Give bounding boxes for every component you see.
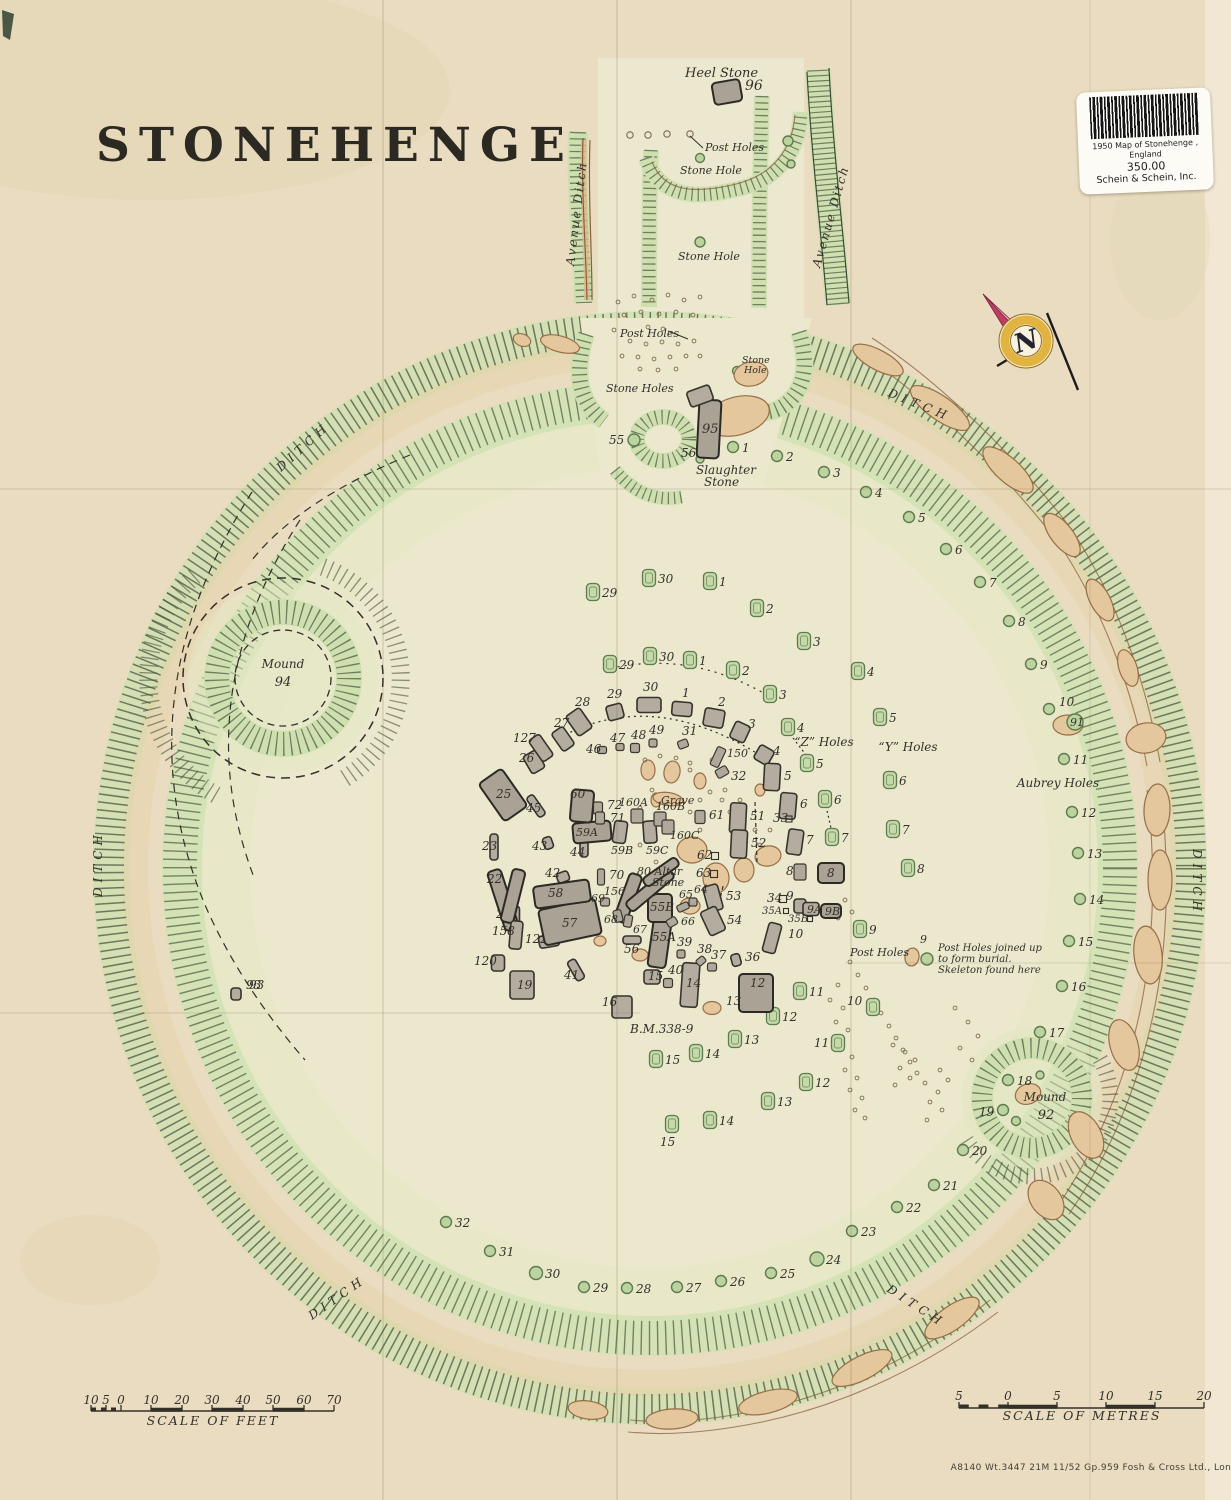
stone-number: 43 — [531, 839, 548, 853]
ring-hole — [798, 633, 811, 650]
stone-number: 2 — [765, 602, 774, 616]
stone-number: 28 — [574, 695, 591, 709]
stone-number: 2 — [717, 695, 726, 709]
scale-subdivision — [111, 1408, 116, 1412]
map-hole — [941, 544, 952, 555]
stone-number: 64 — [694, 883, 708, 896]
stone-number: 11 — [814, 1036, 829, 1050]
scale-tick-label: 40 — [234, 1393, 251, 1407]
map-sheet: 1234567891011121314151617181920212223242… — [0, 0, 1231, 1500]
stone-number: 9 — [869, 923, 877, 937]
paper-stain — [20, 1215, 160, 1305]
stone-number: 12 — [782, 1010, 797, 1024]
stone-number: 59A — [576, 826, 598, 839]
stone-number: 13 — [777, 1095, 793, 1109]
stone-number: 15 — [1078, 935, 1093, 949]
stone-number: 40 — [667, 963, 684, 977]
stone-number: 24 — [825, 1253, 841, 1267]
scale-tick-label: 10 — [1098, 1389, 1114, 1403]
map-hole — [1064, 936, 1075, 947]
map-hole — [1003, 1075, 1014, 1086]
stone-number: 19 — [517, 978, 533, 992]
stone-number: 32 — [455, 1216, 470, 1230]
map-hole — [787, 160, 795, 168]
map-label: 93 — [249, 978, 265, 992]
stone-number: 26 — [518, 751, 535, 765]
stone-number: 54 — [727, 913, 742, 927]
stone-number: 56 — [624, 942, 640, 956]
stone — [711, 79, 742, 106]
stone — [703, 707, 726, 728]
scale-metres-caption: SCALE OF METRES — [1003, 1408, 1162, 1423]
stone-number: 6 — [899, 774, 907, 788]
stone-number: 6 — [955, 543, 963, 557]
stone — [631, 809, 643, 823]
stone-number: 1 — [699, 654, 707, 668]
excavation-patch — [641, 760, 655, 780]
stone-number: 67 — [633, 923, 647, 936]
stone-number: 59B — [611, 844, 633, 857]
stone-number: 49 — [648, 723, 665, 737]
map-title: STONEHENGE — [96, 118, 574, 173]
map-label: Hole — [743, 365, 767, 376]
scale-subdivision — [91, 1408, 96, 1412]
scale-feet-caption: SCALE OF FEET — [147, 1413, 280, 1428]
stone-number: 63 — [696, 866, 712, 880]
stone-number: 156 — [604, 885, 625, 898]
stone-number: 36 — [745, 950, 761, 964]
stone-number: 32 — [731, 769, 746, 783]
ring-hole — [727, 662, 740, 679]
map-label: Stone Hole — [680, 164, 742, 177]
map-canvas: 1234567891011121314151617181920212223242… — [0, 0, 1231, 1500]
stone-number: 22 — [486, 872, 502, 886]
ring-hole — [604, 656, 617, 673]
stone-number: 30 — [658, 572, 674, 586]
stone — [605, 703, 624, 722]
stone-number: 3 — [748, 717, 756, 731]
stone-number: 30 — [643, 680, 659, 694]
scale-tick-label: 30 — [204, 1393, 220, 1407]
map-hole — [1067, 807, 1078, 818]
map-hole — [1057, 981, 1068, 992]
ring-hole — [794, 983, 807, 1000]
stone-number: 21 — [942, 1179, 958, 1193]
scale-tick-label: 10 — [143, 1393, 159, 1407]
stone-number: 1 — [682, 686, 690, 700]
stone-number: 34 — [767, 891, 782, 905]
stone — [231, 988, 241, 1000]
scale-tick-label: 5 — [955, 1389, 963, 1403]
stone-number: 46 — [585, 742, 602, 756]
ring-hole — [704, 573, 717, 590]
ring-hole — [867, 999, 880, 1016]
stone-number: 45 — [525, 801, 541, 815]
map-hole — [847, 1226, 858, 1237]
ring-hole — [852, 663, 865, 680]
stone-number: 69 — [591, 892, 605, 905]
stone-number: 10 — [788, 927, 804, 941]
excavation-patch — [594, 936, 606, 946]
scale-tick-label: 0 — [1004, 1389, 1012, 1403]
stone-number: 26 — [729, 1275, 746, 1289]
stone-number: 65 — [679, 888, 693, 901]
map-hole — [958, 1145, 969, 1156]
stone-number: 72 — [607, 798, 622, 812]
stone — [763, 763, 780, 791]
ring-hole — [704, 1112, 717, 1129]
excavation-patch — [1148, 850, 1172, 910]
stone-number: 42 — [544, 866, 560, 880]
stone-number: 10 — [1059, 695, 1075, 709]
stone-number: 35A — [762, 906, 782, 917]
stone-number: 9A — [807, 903, 822, 916]
stone-number: 127 — [513, 731, 536, 745]
stone-number: 29 — [592, 1281, 609, 1295]
map-hole — [716, 1276, 727, 1287]
map-label: DITCH — [1190, 848, 1204, 916]
map-hole — [766, 1268, 777, 1279]
scale-tick-label: 20 — [173, 1393, 190, 1407]
map-hole — [1036, 1071, 1044, 1079]
map-hole — [1012, 1117, 1021, 1126]
stone-number: 58 — [548, 886, 564, 900]
map-hole — [1026, 659, 1037, 670]
map-label: Mound — [261, 657, 305, 671]
stone-number: 33 — [773, 811, 789, 825]
map-hole — [861, 487, 872, 498]
map-label: Grave — [661, 794, 695, 807]
stone-number: 29 — [601, 586, 618, 600]
map-hole — [810, 1252, 824, 1266]
map-label: Stone — [652, 876, 685, 889]
stone-number: 68 — [604, 913, 618, 926]
stone-number: 35B — [788, 914, 808, 925]
stone-number: 25 — [779, 1267, 795, 1281]
scale-tick-label: 5 — [1053, 1389, 1061, 1403]
stone-number: 44 — [569, 845, 585, 859]
stone-number: 1 — [742, 441, 750, 455]
scale-tick-label: 5 — [102, 1393, 110, 1407]
stone-number: 14 — [705, 1047, 720, 1061]
map-label: 56 — [681, 446, 697, 460]
map-label: DITCH — [91, 830, 105, 898]
map-hole — [441, 1217, 452, 1228]
stone-number: 38 — [697, 942, 713, 956]
ring-hole — [762, 1093, 775, 1110]
map-label: 94 — [275, 675, 292, 690]
stone-number: 55B — [650, 900, 674, 914]
stone-number: 4 — [772, 744, 781, 758]
stone — [664, 979, 673, 988]
ring-hole — [782, 719, 795, 736]
map-hole — [1004, 616, 1015, 627]
map-hole — [1075, 894, 1086, 905]
map-label: Stone Holes — [606, 382, 674, 395]
stone-number: 60 — [570, 787, 586, 801]
stone-number: 158 — [492, 924, 515, 938]
ring-hole — [690, 1045, 703, 1062]
map-hole — [998, 1105, 1009, 1116]
map-hole — [579, 1282, 590, 1293]
stone — [623, 914, 633, 927]
stone-number: 8 — [1018, 615, 1026, 629]
map-label: Stone — [704, 475, 739, 489]
scale-subdivision — [959, 1405, 969, 1409]
stone-number: 31 — [682, 724, 697, 738]
stone-number: 55A — [652, 930, 676, 944]
stone-number: 2 — [785, 450, 794, 464]
stone-number: 11 — [809, 985, 824, 999]
stone-number: 4 — [796, 721, 805, 735]
stone — [786, 829, 804, 856]
stone-number: 15 — [648, 969, 663, 983]
stone-number: 12 — [815, 1076, 830, 1090]
stone-number: 20 — [971, 1144, 988, 1158]
stone — [729, 803, 747, 834]
stone-number: 7 — [806, 833, 814, 847]
stone-number: 61 — [709, 808, 724, 822]
stone-number: 27 — [685, 1281, 702, 1295]
map-label: Mound — [1023, 1090, 1067, 1104]
stone-number: 3 — [813, 635, 821, 649]
map-label: Stone Hole — [678, 250, 740, 263]
stone-number: 51 — [750, 809, 765, 823]
stone — [671, 701, 692, 717]
stone-number: 7 — [902, 823, 910, 837]
map-hole — [1044, 704, 1055, 715]
excavation-patch — [694, 773, 706, 789]
map-label: 91 — [1070, 716, 1084, 729]
scale-subdivision — [998, 1405, 1008, 1409]
stone-number: 4 — [874, 486, 883, 500]
map-hole — [728, 442, 739, 453]
stone-number: 16 — [1071, 980, 1087, 994]
map-label: Post Holes joined up — [937, 943, 1043, 954]
stone-number: 30 — [659, 650, 675, 664]
ring-hole — [902, 860, 915, 877]
stone — [631, 744, 640, 753]
stone-number: 16 — [602, 995, 618, 1009]
scale-tick-label: 70 — [326, 1393, 342, 1407]
stone-number: 62 — [697, 848, 712, 862]
map-label: “Y” Holes — [878, 740, 937, 754]
stone-number: 18 — [1017, 1074, 1033, 1088]
ring-hole — [819, 791, 832, 808]
printer-imprint: A8140 Wt.3447 21M 11/52 Gp.959 Fosh & Cr… — [951, 1463, 1231, 1473]
map-hole — [904, 512, 915, 523]
ring-hole — [800, 1074, 813, 1091]
stone-number: 66 — [681, 915, 695, 928]
stone-number: 5 — [918, 511, 926, 525]
stone-number: 160A — [619, 796, 648, 809]
stone-number: 6 — [800, 797, 808, 811]
map-hole — [892, 1202, 903, 1213]
stone-number: 53 — [726, 889, 742, 903]
map-label: 96 — [745, 78, 763, 94]
price-sticker: 1950 Map of Stonehenge , England 350.00 … — [1076, 87, 1214, 195]
map-label: “Z” Holes — [794, 735, 853, 749]
stone-number: 150 — [727, 747, 748, 760]
stone-number: 7 — [989, 576, 997, 590]
stone-number: 23 — [860, 1225, 877, 1239]
stone-number: 7 — [841, 831, 849, 845]
stone-number: 9B — [825, 905, 840, 918]
stone — [649, 739, 657, 747]
stone-number: 14 — [686, 976, 701, 990]
stone-number: 37 — [711, 948, 727, 962]
stone-number: 2 — [741, 664, 750, 678]
map-hole — [530, 1267, 543, 1280]
stone-number: 9 — [1040, 658, 1048, 672]
ring-hole — [729, 1031, 742, 1048]
stone-number: 8 — [786, 864, 794, 878]
stone-number: 28 — [635, 1282, 652, 1296]
map-hole — [628, 434, 640, 446]
map-hole — [929, 1180, 940, 1191]
scale-tick-label: 50 — [265, 1393, 281, 1407]
map-hole — [772, 451, 783, 462]
stone-number: 14 — [1089, 893, 1104, 907]
stone-number: 15 — [660, 1135, 675, 1149]
stone-number: 5 — [816, 757, 824, 771]
stone-number: 5 — [889, 711, 897, 725]
scale-tick-label: 15 — [1147, 1389, 1162, 1403]
ring-hole — [764, 686, 777, 703]
scale-tick-label: 20 — [1195, 1389, 1212, 1403]
excavation-patch — [703, 1002, 721, 1015]
stone-number: 4 — [866, 665, 875, 679]
stone-number: 57 — [562, 916, 578, 930]
stone-number: 1 — [719, 575, 727, 589]
map-hole — [672, 1282, 683, 1293]
stone-number: 120 — [474, 954, 497, 968]
map-label: B.M.338-9 — [629, 1022, 694, 1036]
scale-subdivision — [979, 1405, 989, 1409]
stone-number: 13 — [726, 994, 742, 1008]
stone-number: 15 — [665, 1053, 680, 1067]
ring-hole — [832, 1035, 845, 1052]
scale-tick-label: 0 — [117, 1393, 125, 1407]
stone-number: 29 — [618, 658, 635, 672]
stone-number: 41 — [563, 968, 579, 982]
stone-number: 11 — [1073, 753, 1088, 767]
stone-number: 12 — [750, 976, 765, 990]
stone-number: 39 — [677, 935, 693, 949]
map-label: Post Holes — [849, 946, 909, 959]
map-label: 92 — [1038, 1108, 1055, 1123]
ring-hole — [587, 584, 600, 601]
stone — [677, 950, 685, 958]
stone-number: 6 — [834, 793, 842, 807]
scale-tick-label: 60 — [296, 1393, 312, 1407]
stone-number: 19 — [979, 1105, 995, 1119]
map-hole — [1059, 754, 1070, 765]
stone-number: 17 — [1049, 1026, 1065, 1040]
stone — [637, 698, 661, 713]
stone-number: 3 — [779, 688, 787, 702]
stone-number: 27 — [553, 716, 570, 730]
stone — [730, 953, 742, 967]
map-hole — [975, 577, 986, 588]
map-hole — [485, 1246, 496, 1257]
stone-number: 10 — [847, 994, 863, 1008]
map-hole — [622, 1283, 633, 1294]
ring-hole — [666, 1116, 679, 1133]
stone — [730, 830, 747, 859]
stone-number: 8 — [827, 866, 835, 880]
stone — [596, 812, 605, 824]
stone-number: 22 — [905, 1201, 921, 1215]
scale-tick-label: 10 — [83, 1393, 99, 1407]
stone-number: 12 — [1081, 806, 1096, 820]
ring-hole — [650, 1051, 663, 1068]
stone-number: 52 — [751, 836, 766, 850]
map-label: Skeleton found here — [938, 965, 1041, 976]
map-label: 95 — [702, 422, 719, 437]
stone-number: 8 — [917, 862, 925, 876]
map-hole — [695, 237, 705, 247]
ring-hole — [684, 652, 697, 669]
stone-number: 3 — [833, 466, 841, 480]
ring-hole — [644, 648, 657, 665]
ring-hole — [826, 829, 839, 846]
map-hole — [783, 136, 793, 146]
stone — [794, 864, 806, 880]
ring-hole — [751, 600, 764, 617]
ring-hole — [854, 921, 867, 938]
map-label: 9 — [920, 933, 927, 946]
stone-number: 160C — [670, 829, 700, 842]
stone-number: 14 — [719, 1114, 734, 1128]
stone-number: 9 — [786, 889, 794, 903]
stone-number: 13 — [744, 1033, 760, 1047]
map-label: Post Holes — [704, 141, 764, 154]
stone — [695, 811, 705, 824]
map-label: Post Holes — [619, 327, 679, 340]
map-label: Aubrey Holes — [1016, 776, 1099, 790]
stone-number: 5 — [784, 769, 792, 783]
stone-number: 31 — [499, 1245, 514, 1259]
stone-number: 23 — [481, 839, 498, 853]
stone-number: 25 — [495, 787, 511, 801]
map-hole — [696, 154, 705, 163]
excavation-patch — [734, 858, 754, 882]
stone — [598, 869, 605, 885]
stone — [708, 963, 717, 971]
map-hole — [1035, 1027, 1046, 1038]
scale-subdivision — [101, 1408, 106, 1412]
ring-hole — [884, 772, 897, 789]
ring-hole — [643, 570, 656, 587]
stone-number: 29 — [606, 687, 623, 701]
map-hole — [1073, 848, 1084, 859]
stone-number: 30 — [545, 1267, 561, 1281]
map-hole — [819, 467, 830, 478]
stone-number: 59C — [646, 844, 669, 857]
ring-hole — [887, 821, 900, 838]
barcode — [1089, 93, 1199, 139]
ring-hole — [874, 709, 887, 726]
stone-number: 48 — [630, 728, 647, 742]
ring-hole — [801, 755, 814, 772]
